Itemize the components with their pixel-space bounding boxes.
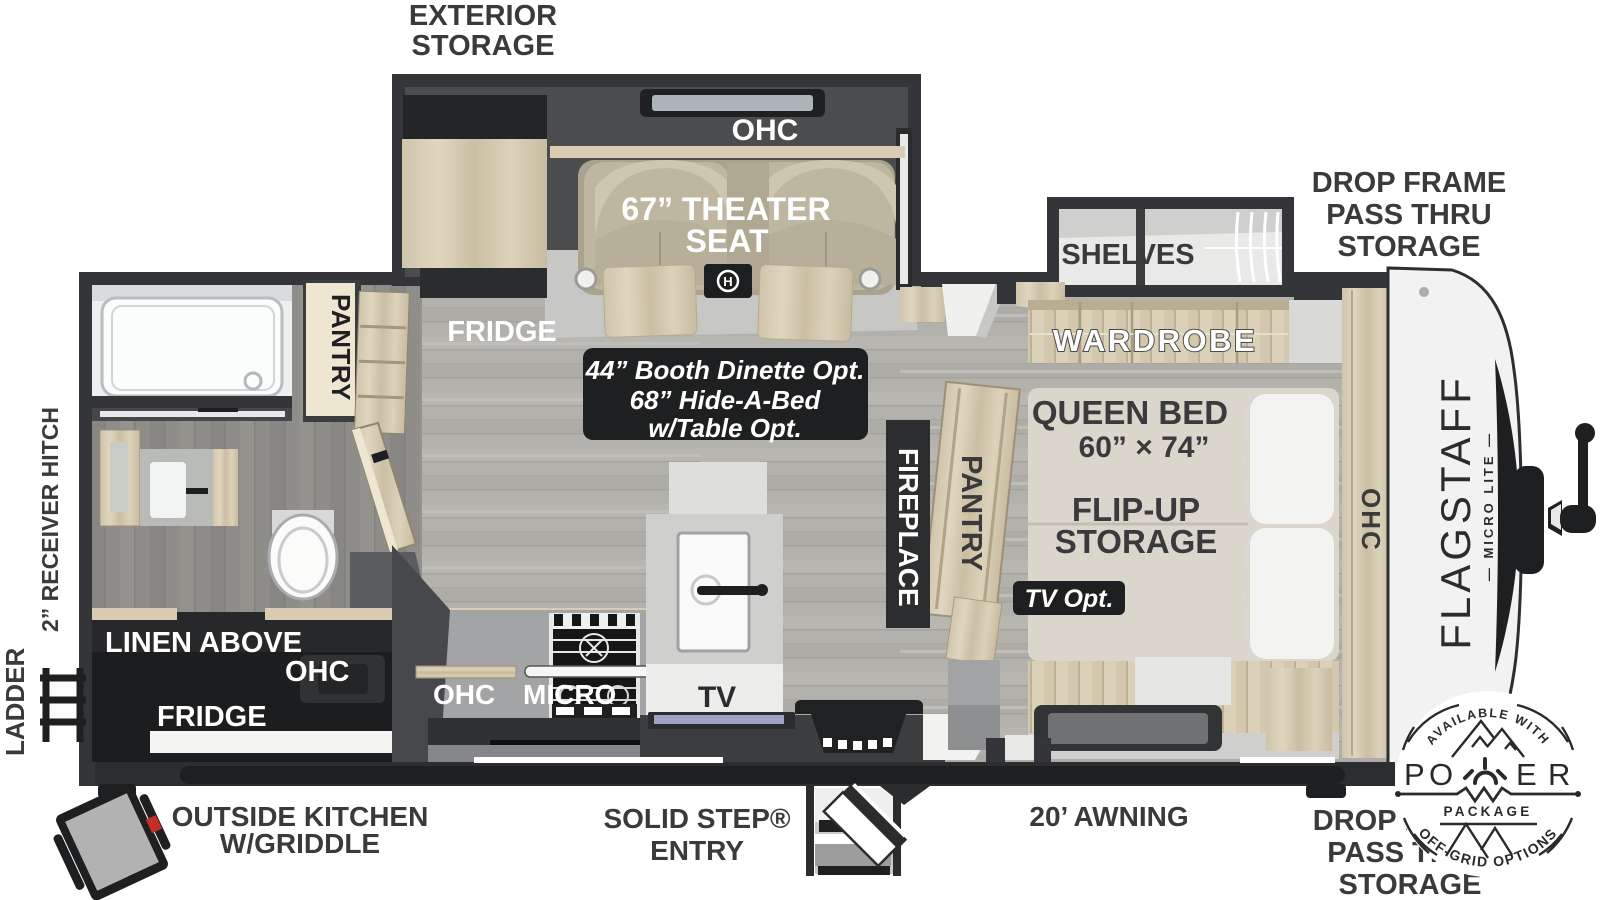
svg-text:SHELVES: SHELVES (1061, 239, 1194, 271)
svg-text:FRIDGE: FRIDGE (157, 701, 267, 733)
svg-text:OHC: OHC (285, 656, 350, 688)
svg-text:STORAGE: STORAGE (1339, 869, 1482, 900)
svg-text:LINEN ABOVE: LINEN ABOVE (105, 627, 302, 659)
svg-text:FRIDGE: FRIDGE (447, 316, 557, 348)
svg-text:STORAGE: STORAGE (1055, 523, 1218, 560)
svg-text:W/GRIDDLE: W/GRIDDLE (220, 828, 380, 859)
svg-text:44” Booth Dinette Opt.: 44” Booth Dinette Opt. (585, 355, 865, 385)
svg-text:67” THEATER: 67” THEATER (621, 191, 830, 227)
svg-text:LADDER: LADDER (0, 647, 30, 756)
svg-text:— MICRO LITE —: — MICRO LITE — (1481, 431, 1496, 581)
svg-text:PASS THRU: PASS THRU (1326, 199, 1491, 231)
svg-text:WARDROBE: WARDROBE (1053, 323, 1257, 358)
svg-text:OHC: OHC (1356, 488, 1386, 552)
svg-text:PANTRY: PANTRY (326, 294, 356, 401)
svg-text:MICRO: MICRO (523, 679, 616, 710)
svg-text:FIREPLACE: FIREPLACE (893, 448, 924, 607)
svg-text:R: R (1548, 757, 1570, 792)
svg-text:20’ AWNING: 20’ AWNING (1029, 801, 1188, 832)
svg-text:H: H (723, 274, 732, 289)
svg-text:OHC: OHC (433, 679, 495, 710)
svg-text:PANTRY: PANTRY (955, 455, 987, 571)
svg-text:SEAT: SEAT (686, 223, 769, 259)
svg-text:ENTRY: ENTRY (650, 835, 744, 866)
svg-text:OHC: OHC (732, 114, 799, 147)
svg-text:SOLID STEP®: SOLID STEP® (603, 803, 790, 834)
svg-text:TV Opt.: TV Opt. (1025, 585, 1114, 613)
svg-text:O: O (1429, 757, 1453, 792)
svg-text:EXTERIOR: EXTERIOR (409, 0, 557, 32)
svg-text:E: E (1516, 757, 1537, 792)
svg-text:FLAGSTAFF: FLAGSTAFF (1432, 374, 1479, 650)
svg-text:STORAGE: STORAGE (1338, 231, 1481, 263)
svg-text:PACKAGE: PACKAGE (1444, 804, 1533, 819)
svg-text:68” Hide-A-Bed: 68” Hide-A-Bed (630, 385, 822, 415)
svg-text:60” × 74”: 60” × 74” (1079, 431, 1210, 464)
svg-text:P: P (1404, 757, 1425, 792)
svg-text:STORAGE: STORAGE (412, 30, 555, 62)
svg-text:DROP FRAME: DROP FRAME (1312, 167, 1506, 199)
svg-text:TV: TV (698, 681, 736, 714)
svg-text:2” RECEIVER HITCH: 2” RECEIVER HITCH (37, 407, 63, 632)
svg-text:QUEEN BED: QUEEN BED (1032, 394, 1228, 431)
svg-text:w/Table Opt.: w/Table Opt. (648, 413, 802, 443)
